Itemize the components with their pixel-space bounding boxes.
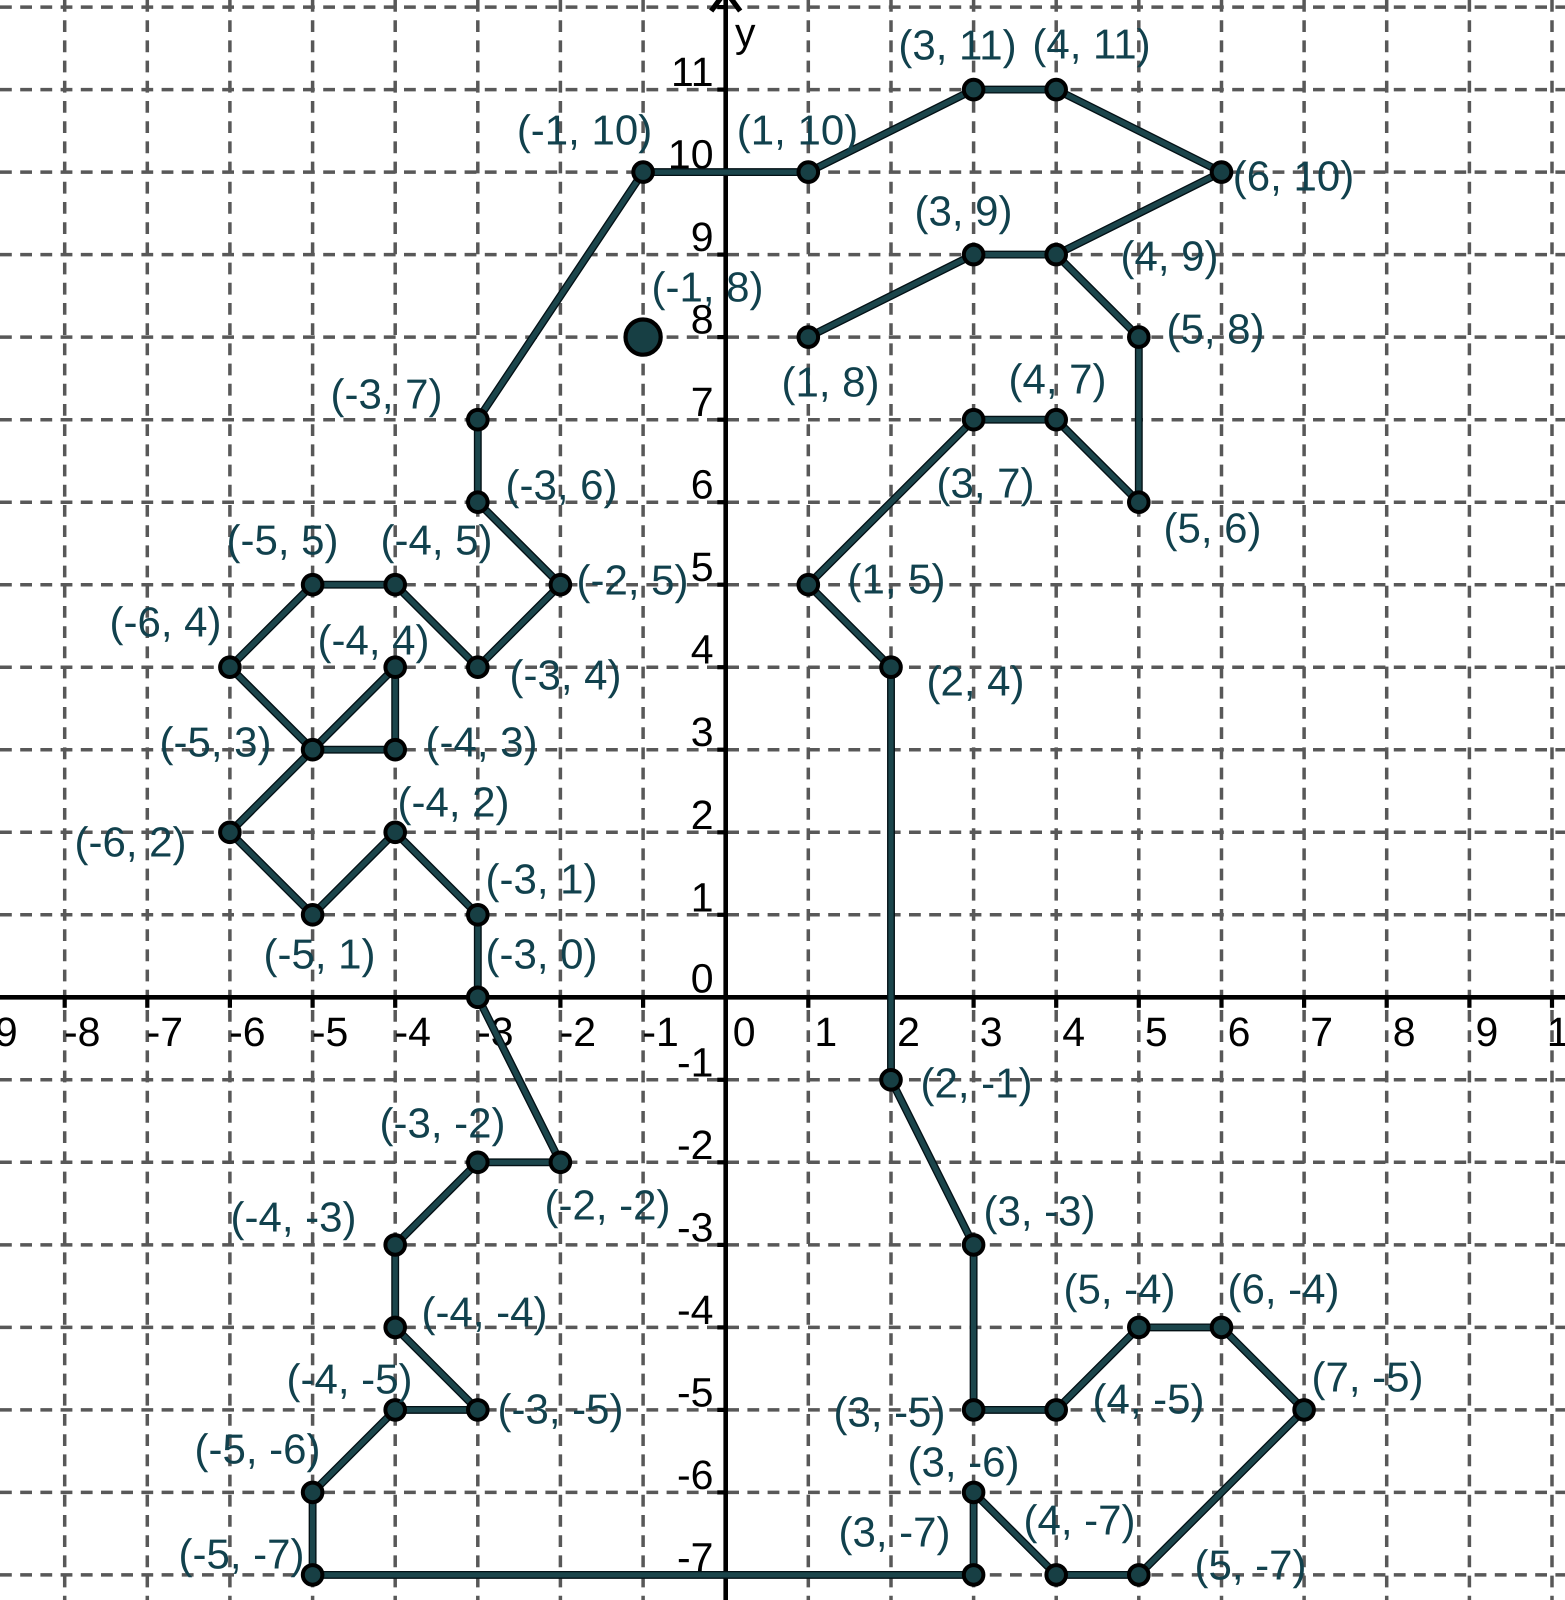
svg-text:(-4, 5): (-4, 5) (380, 517, 492, 564)
svg-text:(-6, 2): (-6, 2) (74, 819, 186, 866)
svg-text:(-5, -6): (-5, -6) (195, 1426, 321, 1473)
svg-text:(-4, 4): (-4, 4) (317, 617, 429, 664)
svg-text:2: 2 (691, 792, 714, 838)
svg-text:(-3, -5): (-3, -5) (498, 1386, 624, 1433)
svg-text:(-3, 4): (-3, 4) (509, 652, 621, 699)
svg-text:4: 4 (1062, 1009, 1085, 1055)
svg-text:(-4, 2): (-4, 2) (397, 779, 509, 826)
svg-text:(5, -7): (5, -7) (1194, 1542, 1306, 1589)
svg-text:(-1, 8): (-1, 8) (651, 264, 763, 311)
svg-text:(-3, 0): (-3, 0) (485, 931, 597, 978)
svg-text:8: 8 (1393, 1009, 1416, 1055)
svg-text:(3, 11): (3, 11) (898, 22, 1016, 69)
svg-text:6: 6 (1228, 1009, 1251, 1055)
svg-text:(1, 10): (1, 10) (737, 107, 858, 154)
svg-text:11: 11 (671, 49, 714, 95)
svg-text:(-2, 5): (-2, 5) (576, 557, 688, 604)
svg-text:-5: -5 (312, 1009, 348, 1055)
svg-text:(4, 9): (4, 9) (1120, 233, 1218, 280)
svg-text:1: 1 (691, 874, 714, 920)
svg-text:6: 6 (691, 462, 714, 508)
svg-text:(3, -7): (3, -7) (838, 1509, 950, 1556)
svg-text:(-4, -5): (-4, -5) (287, 1356, 413, 1403)
svg-text:0: 0 (691, 956, 714, 1002)
svg-text:(-3, 1): (-3, 1) (485, 856, 597, 903)
svg-text:5: 5 (1145, 1009, 1168, 1055)
svg-text:2: 2 (897, 1009, 920, 1055)
svg-text:(-3, -2): (-3, -2) (380, 1100, 506, 1147)
svg-text:(-5, 3): (-5, 3) (159, 719, 271, 766)
svg-text:(3, 9): (3, 9) (914, 188, 1012, 235)
svg-text:(1, 5): (1, 5) (847, 556, 945, 603)
svg-text:(-5, -7): (-5, -7) (179, 1531, 305, 1578)
svg-text:-2: -2 (560, 1009, 596, 1055)
svg-text:(-6, 4): (-6, 4) (109, 599, 221, 646)
svg-text:-2: -2 (677, 1122, 713, 1168)
svg-text:(-5, 5): (-5, 5) (226, 517, 338, 564)
svg-text:-4: -4 (394, 1009, 430, 1055)
svg-text:-9: -9 (0, 1009, 18, 1055)
svg-text:(4, -5): (4, -5) (1092, 1376, 1204, 1423)
svg-text:(-3, 6): (-3, 6) (505, 462, 617, 509)
svg-text:-6: -6 (677, 1452, 713, 1498)
svg-text:(5, 6): (5, 6) (1163, 505, 1261, 552)
svg-text:(-4, -3): (-4, -3) (231, 1194, 357, 1241)
svg-text:1: 1 (814, 1009, 837, 1055)
svg-text:4: 4 (691, 627, 714, 673)
svg-text:(4, 7): (4, 7) (1008, 356, 1106, 403)
svg-text:(-3, 7): (-3, 7) (330, 371, 442, 418)
svg-text:(4, 11): (4, 11) (1032, 21, 1150, 68)
svg-text:(5, -4): (5, -4) (1063, 1266, 1175, 1313)
svg-text:(7, -5): (7, -5) (1311, 1354, 1423, 1401)
svg-text:(6, 10): (6, 10) (1233, 153, 1354, 200)
svg-text:7: 7 (1310, 1009, 1333, 1055)
svg-text:(-4, -4): (-4, -4) (422, 1289, 548, 1336)
svg-text:3: 3 (691, 709, 714, 755)
svg-text:(-2, -2): (-2, -2) (545, 1182, 671, 1229)
svg-text:7: 7 (691, 379, 714, 425)
svg-text:9: 9 (691, 214, 714, 260)
svg-text:(6, -4): (6, -4) (1227, 1266, 1339, 1313)
svg-text:(-1, 10): (-1, 10) (517, 107, 652, 154)
svg-text:-3: -3 (677, 1204, 713, 1250)
svg-text:-6: -6 (229, 1009, 265, 1055)
svg-text:(1, 8): (1, 8) (781, 359, 879, 406)
svg-text:(2, 4): (2, 4) (926, 658, 1024, 705)
svg-text:(-5, 1): (-5, 1) (263, 931, 375, 978)
svg-text:-5: -5 (677, 1369, 713, 1415)
svg-text:(3, 7): (3, 7) (936, 460, 1034, 507)
svg-text:9: 9 (1475, 1009, 1498, 1055)
svg-text:(3, -6): (3, -6) (907, 1439, 1019, 1486)
svg-text:-1: -1 (677, 1039, 713, 1085)
svg-text:(2, -1): (2, -1) (920, 1060, 1032, 1107)
svg-text:-4: -4 (677, 1287, 713, 1333)
svg-text:0: 0 (733, 1009, 756, 1055)
svg-text:(-4, 3): (-4, 3) (425, 719, 537, 766)
svg-text:-8: -8 (64, 1009, 100, 1055)
svg-text:3: 3 (980, 1009, 1003, 1055)
svg-text:10: 10 (1547, 1009, 1565, 1055)
svg-text:(3, -3): (3, -3) (983, 1188, 1095, 1235)
svg-text:(4, -7): (4, -7) (1023, 1497, 1135, 1544)
svg-text:5: 5 (691, 544, 714, 590)
svg-text:(3, -5): (3, -5) (833, 1389, 945, 1436)
svg-text:-1: -1 (642, 1009, 678, 1055)
svg-text:(5, 8): (5, 8) (1166, 306, 1264, 353)
svg-text:y: y (735, 10, 756, 56)
svg-text:-7: -7 (147, 1009, 183, 1055)
